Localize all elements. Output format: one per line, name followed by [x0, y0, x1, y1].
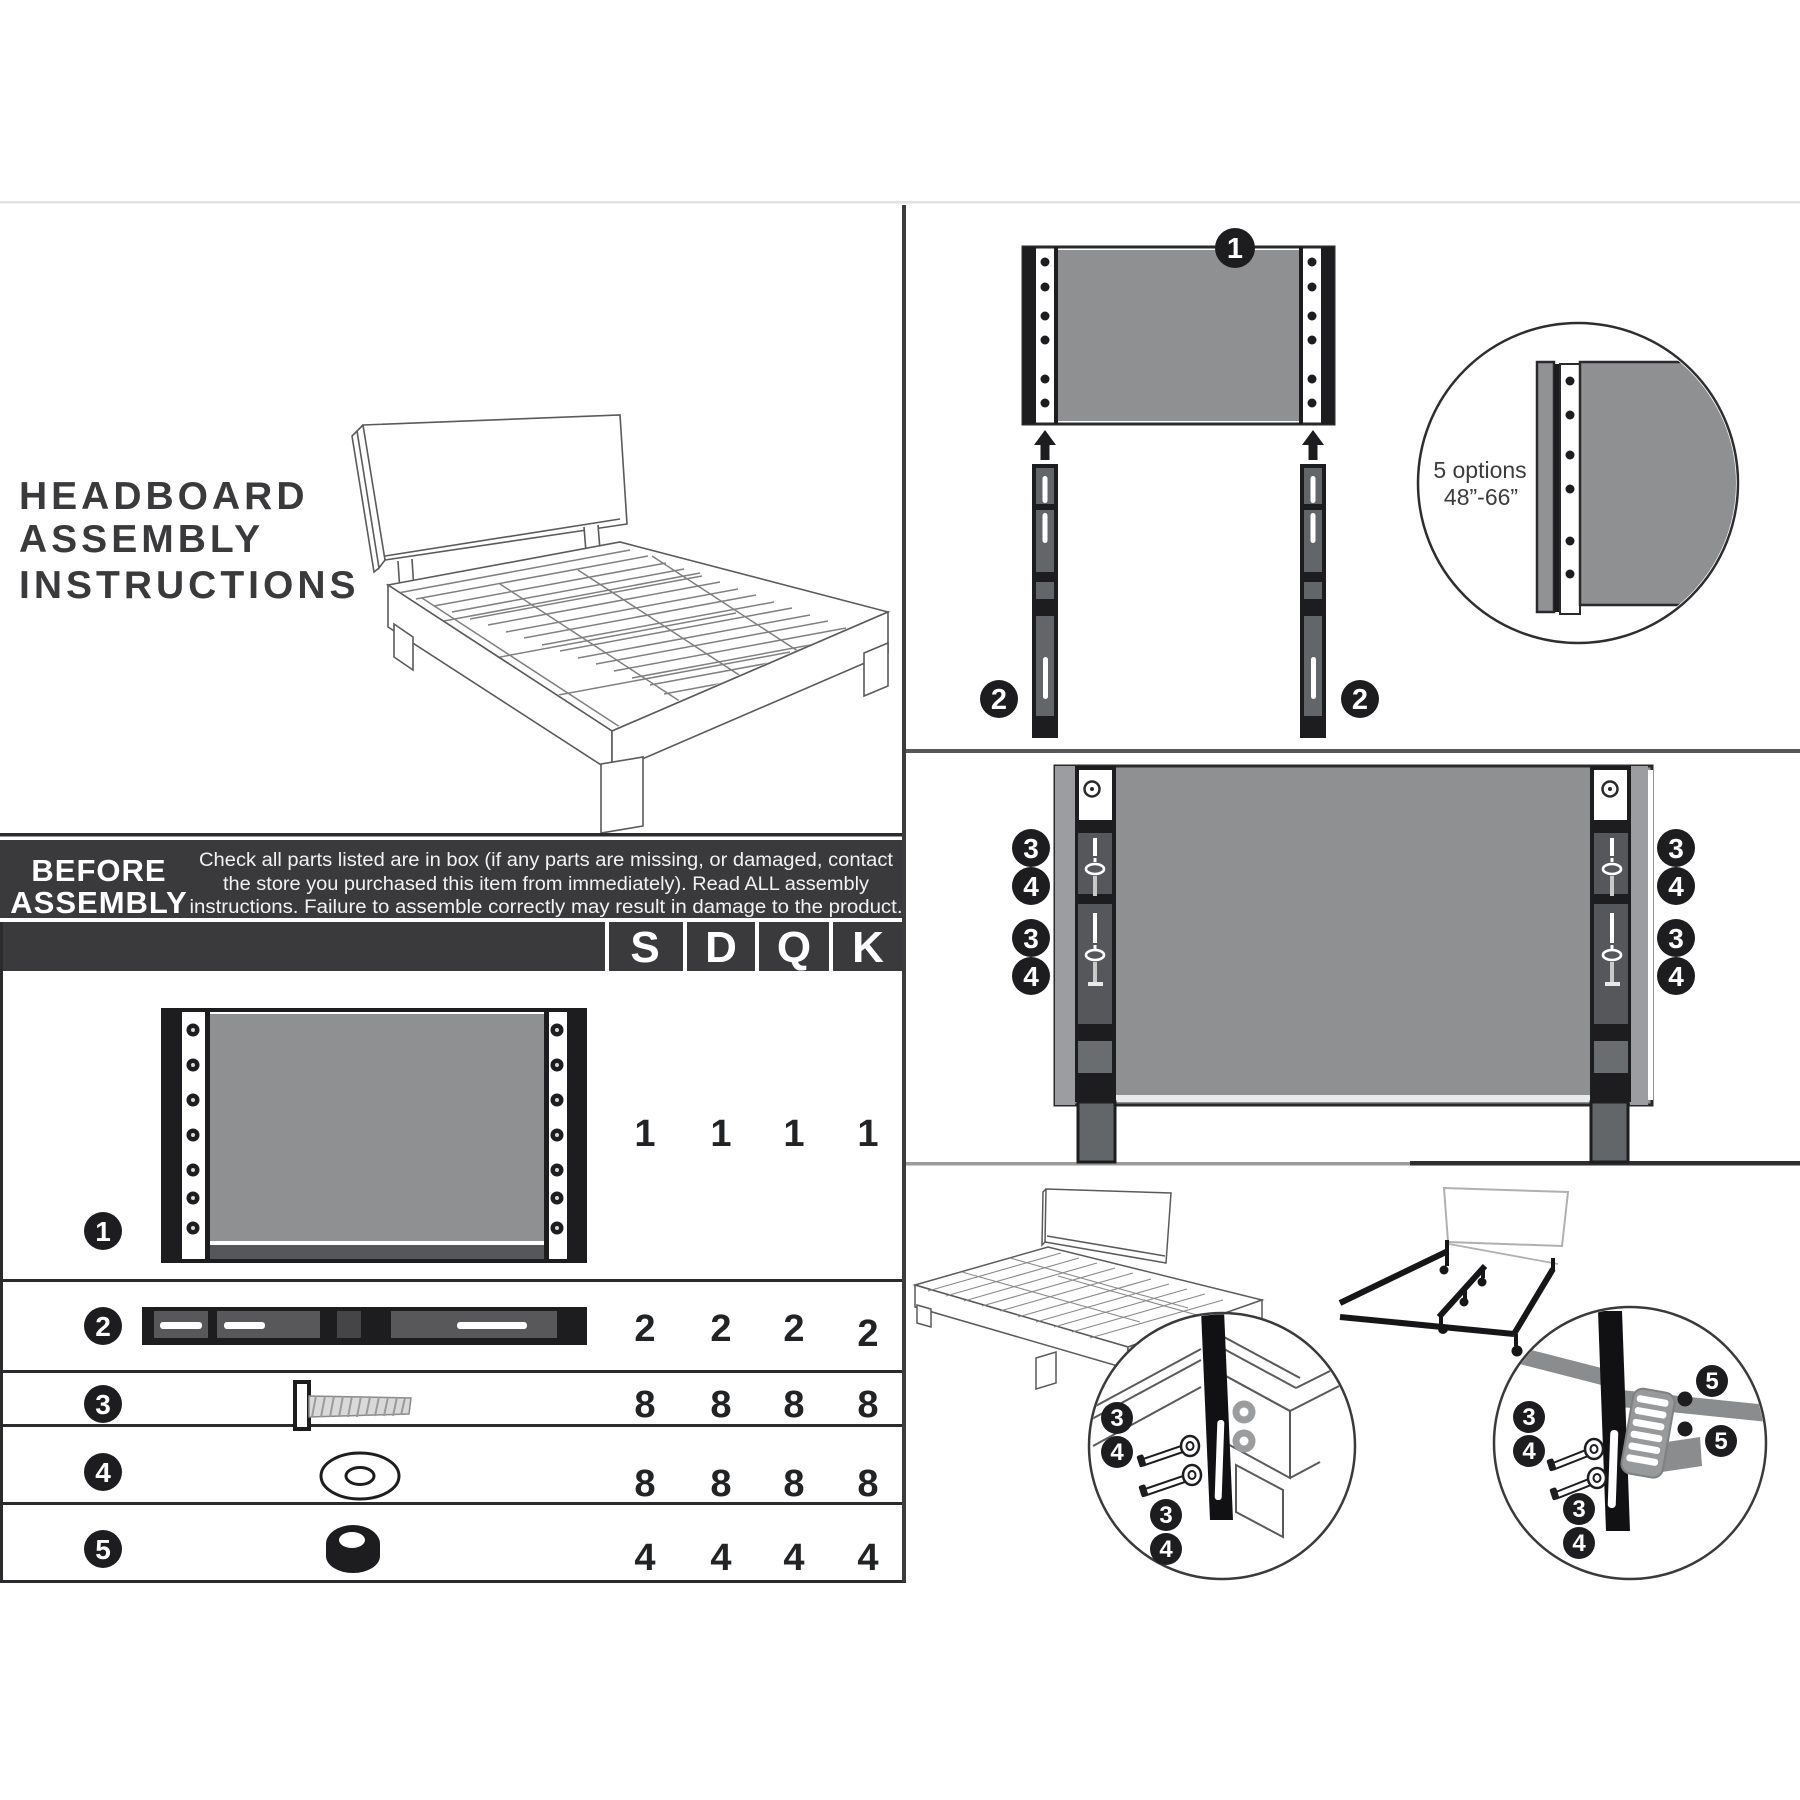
svg-text:5: 5	[95, 1534, 111, 1565]
svg-text:8: 8	[634, 1463, 655, 1505]
svg-text:2: 2	[783, 1308, 804, 1350]
svg-text:8: 8	[783, 1463, 804, 1505]
svg-text:S: S	[630, 923, 659, 972]
svg-text:1: 1	[857, 1113, 878, 1155]
svg-text:BEFORE: BEFORE	[31, 853, 166, 888]
svg-text:Check all parts listed are in: Check all parts listed are in box (if an…	[199, 850, 894, 871]
svg-text:8: 8	[783, 1384, 804, 1426]
svg-text:ASSEMBLY: ASSEMBLY	[10, 885, 187, 920]
svg-text:1: 1	[710, 1113, 731, 1155]
svg-text:2: 2	[1352, 684, 1368, 716]
svg-text:8: 8	[710, 1384, 731, 1426]
svg-text:3: 3	[1668, 923, 1684, 954]
svg-text:3: 3	[1110, 1405, 1123, 1432]
svg-text:8: 8	[857, 1463, 878, 1505]
svg-text:3: 3	[1159, 1502, 1172, 1529]
svg-text:instructions. Failure to assem: instructions. Failure to assemble correc…	[190, 897, 903, 918]
svg-text:4: 4	[710, 1537, 731, 1579]
svg-text:4: 4	[783, 1537, 804, 1579]
svg-text:4: 4	[1023, 961, 1039, 992]
svg-text:1: 1	[783, 1113, 804, 1155]
svg-text:4: 4	[1572, 1530, 1586, 1557]
svg-text:4: 4	[1110, 1439, 1124, 1466]
svg-text:INSTRUCTIONS: INSTRUCTIONS	[19, 564, 360, 607]
svg-text:3: 3	[95, 1389, 111, 1420]
svg-text:8: 8	[710, 1463, 731, 1505]
svg-text:3: 3	[1668, 833, 1684, 864]
svg-text:48”-66”: 48”-66”	[1444, 484, 1518, 510]
svg-text:2: 2	[857, 1313, 878, 1355]
svg-text:4: 4	[1023, 871, 1039, 902]
svg-text:2: 2	[634, 1308, 655, 1350]
svg-text:2: 2	[95, 1311, 111, 1342]
svg-text:1: 1	[95, 1216, 111, 1247]
svg-text:5: 5	[1714, 1428, 1727, 1455]
svg-text:3: 3	[1522, 1404, 1535, 1431]
svg-text:1: 1	[1227, 233, 1243, 265]
svg-text:ASSEMBLY: ASSEMBLY	[19, 518, 264, 561]
svg-text:1: 1	[634, 1113, 655, 1155]
svg-text:8: 8	[634, 1384, 655, 1426]
svg-text:4: 4	[857, 1537, 878, 1579]
svg-text:3: 3	[1023, 923, 1039, 954]
svg-text:3: 3	[1023, 833, 1039, 864]
svg-text:4: 4	[1159, 1536, 1173, 1563]
svg-text:K: K	[852, 923, 884, 972]
svg-text:4: 4	[634, 1537, 655, 1579]
svg-text:4: 4	[95, 1457, 111, 1488]
svg-text:4: 4	[1668, 961, 1684, 992]
svg-text:D: D	[705, 923, 737, 972]
svg-text:5: 5	[1705, 1368, 1718, 1395]
svg-text:2: 2	[710, 1308, 731, 1350]
svg-text:3: 3	[1572, 1496, 1585, 1523]
svg-text:4: 4	[1668, 871, 1684, 902]
svg-text:8: 8	[857, 1384, 878, 1426]
svg-text:the store you purchased this i: the store you purchased this item from i…	[223, 874, 870, 895]
svg-text:4: 4	[1522, 1438, 1536, 1465]
svg-text:HEADBOARD: HEADBOARD	[19, 475, 309, 518]
svg-text:5 options: 5 options	[1433, 457, 1526, 483]
svg-text:2: 2	[991, 684, 1007, 716]
svg-text:Q: Q	[777, 923, 811, 972]
